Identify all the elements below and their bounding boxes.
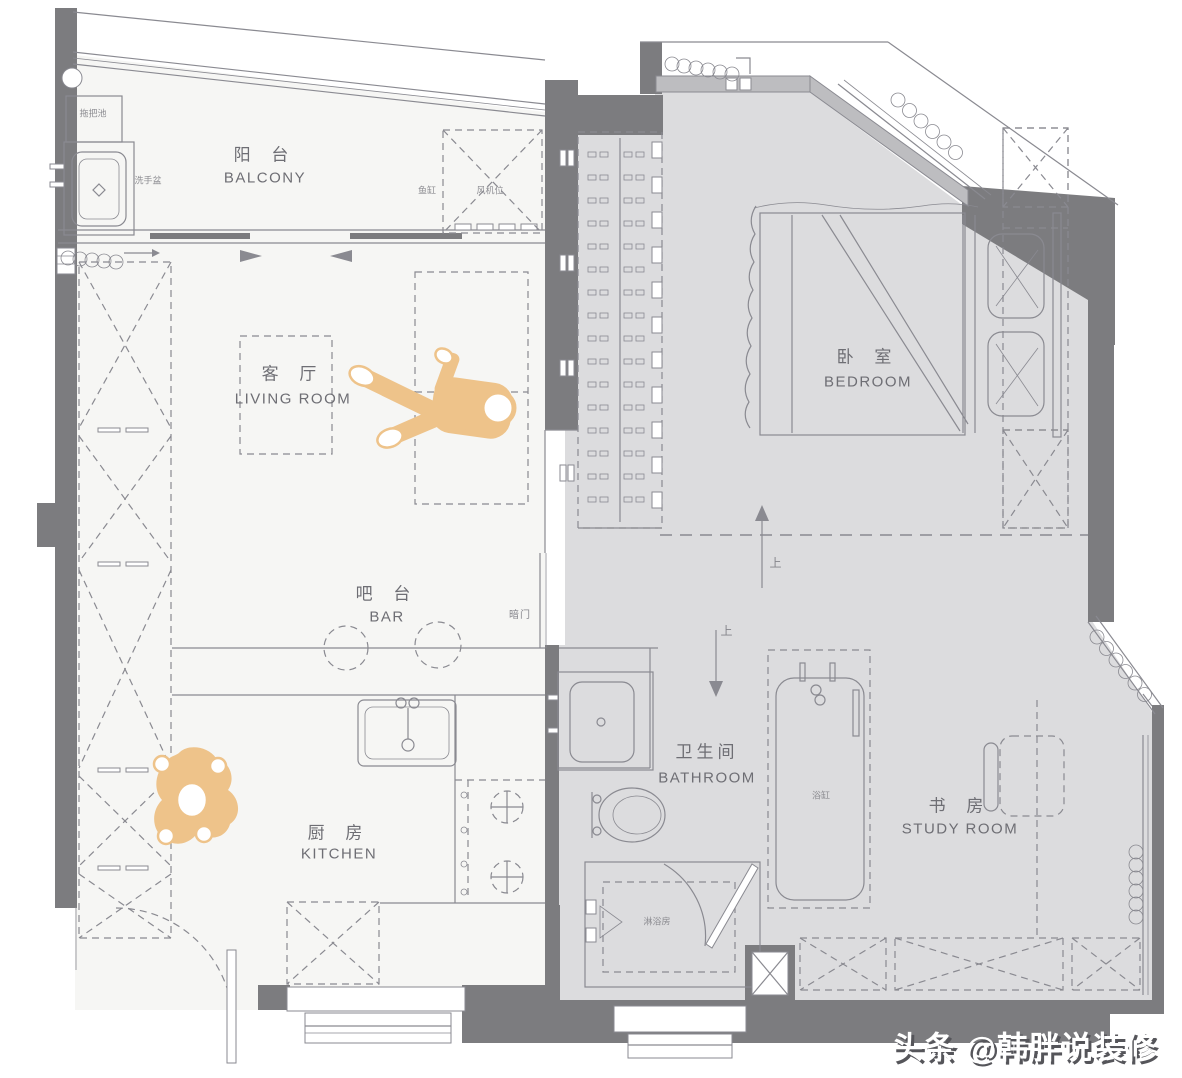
balcony-label-en: BALCONY bbox=[224, 171, 306, 186]
cat-figure bbox=[154, 747, 238, 844]
living-room-label-en: LIVING ROOM bbox=[235, 392, 352, 407]
bedroom-label-en: BEDROOM bbox=[824, 375, 912, 390]
bar-label-en: BAR bbox=[369, 610, 404, 625]
watermark: 头条 @韩胖说装修 bbox=[892, 1023, 1157, 1068]
floor-plan-drawing bbox=[0, 0, 1182, 1078]
mop-sink-label: 拖把池 bbox=[79, 110, 106, 119]
kitchen-label-zh: 厨 房 bbox=[308, 825, 371, 842]
shower-room-label: 淋浴房 bbox=[643, 918, 670, 927]
equipment-bay-label: 风机位 bbox=[476, 187, 503, 196]
bathroom-label-zh: 卫生间 bbox=[676, 744, 739, 761]
bedroom-label-zh: 卧 室 bbox=[837, 349, 900, 366]
living-room-label-zh: 客 厅 bbox=[262, 366, 325, 383]
balcony-label-zh: 阳 台 bbox=[234, 147, 297, 164]
kitchen-label-en: KITCHEN bbox=[301, 847, 377, 862]
hidden-door-label: 暗门 bbox=[509, 611, 531, 621]
bar-label-zh: 吧 台 bbox=[356, 586, 419, 603]
hand-basin-label: 洗手盆 bbox=[134, 177, 161, 186]
bathroom-label-en: BATHROOM bbox=[658, 771, 756, 786]
step-down-label: 上 bbox=[720, 625, 733, 637]
bathtub-label: 浴缸 bbox=[812, 792, 830, 801]
study-room-label-en: STUDY ROOM bbox=[902, 822, 1018, 837]
step-up-label: 上 bbox=[769, 557, 782, 569]
study-room-label-zh: 书 房 bbox=[929, 798, 992, 815]
floor-plan-page: 阳 台 BALCONY 客 厅 LIVING ROOM 卧 室 BEDROOM … bbox=[0, 0, 1182, 1078]
fish-tank-label: 鱼缸 bbox=[418, 187, 436, 196]
